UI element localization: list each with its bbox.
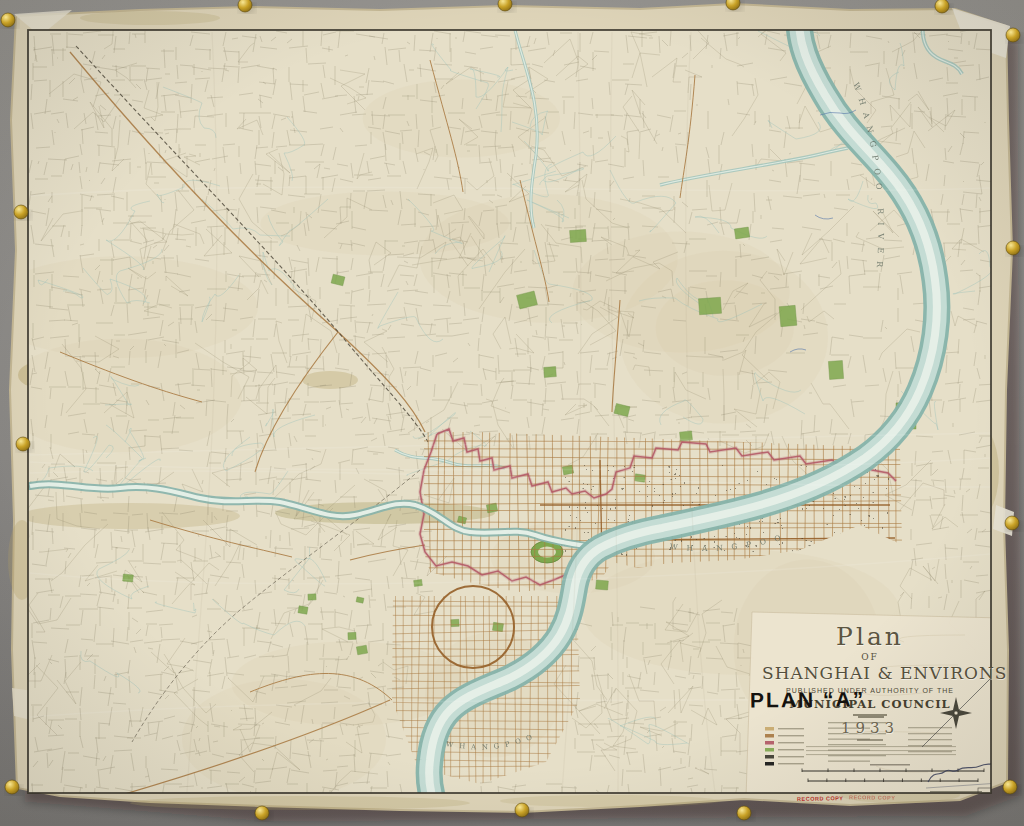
map-field: WHANGPOO RIVERWHANGPOOWHANGPOO: [0, 0, 1006, 807]
brass-pin: [5, 780, 19, 794]
brass-pin: [737, 806, 751, 820]
photo-of-wall-map: WHANGPOO RIVERWHANGPOOWHANGPOO Plan OF S…: [0, 0, 1024, 826]
brass-pin: [515, 803, 529, 817]
brass-pin: [1003, 780, 1017, 794]
brass-pin: [1006, 241, 1020, 255]
brass-pin: [1, 13, 15, 27]
brass-pin: [255, 806, 269, 820]
brass-pin: [16, 437, 30, 451]
brass-pin: [498, 0, 512, 11]
brass-pin: [935, 0, 949, 13]
brass-pin: [1006, 28, 1020, 42]
map-artwork: WHANGPOO RIVERWHANGPOOWHANGPOO: [0, 0, 1024, 826]
brass-pin: [238, 0, 252, 12]
cartouche-panel: [746, 612, 1002, 802]
brass-pin: [1005, 516, 1019, 530]
brass-pin: [14, 205, 28, 219]
